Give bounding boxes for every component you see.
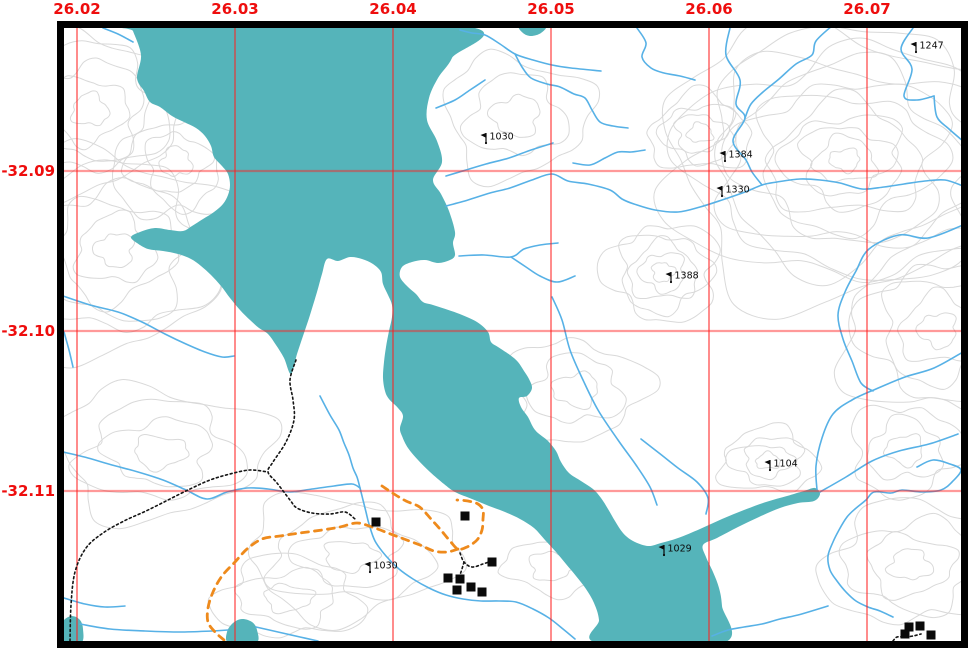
building-square-icon xyxy=(927,631,936,640)
flag-base-dot xyxy=(670,281,672,283)
spot-height-label: 1030 xyxy=(374,561,398,572)
flag-base-dot xyxy=(663,554,665,556)
spot-height-label: 1030 xyxy=(490,132,514,143)
building-square-icon xyxy=(372,518,381,527)
building-square-icon xyxy=(453,586,462,595)
map-canvas[interactable]: 12471030138413301388110410291030 26.02 2… xyxy=(0,0,976,665)
grid-label-top-5: 26.07 xyxy=(843,1,890,17)
spot-height: 1388 xyxy=(666,271,699,284)
grid-label-left-2: -32.11 xyxy=(0,483,55,499)
spot-height: 1030 xyxy=(365,561,398,574)
building-square-icon xyxy=(488,558,497,567)
building-square-icon xyxy=(461,512,470,521)
spot-height-label: 1247 xyxy=(920,41,944,52)
building-square-icon xyxy=(916,622,925,631)
grid-label-top-0: 26.02 xyxy=(53,1,100,17)
flag-base-dot xyxy=(724,160,726,162)
grid-label-left-1: -32.10 xyxy=(0,323,55,339)
grid-label-top-1: 26.03 xyxy=(211,1,258,17)
spot-height: 1030 xyxy=(481,132,514,145)
spot-height: 1330 xyxy=(717,185,750,198)
spot-height-label: 1330 xyxy=(726,185,750,196)
building-square-icon xyxy=(901,630,910,639)
flag-base-dot xyxy=(485,142,487,144)
spot-height: 1029 xyxy=(659,544,692,557)
grid-label-left-0: -32.09 xyxy=(0,163,55,179)
building-square-icon xyxy=(478,588,487,597)
flag-base-dot xyxy=(915,51,917,53)
spot-height: 1384 xyxy=(720,150,753,163)
building-square-icon xyxy=(444,574,453,583)
grid-label-top-4: 26.06 xyxy=(685,1,732,17)
grid-label-top-3: 26.05 xyxy=(527,1,574,17)
building-square-icon xyxy=(467,583,476,592)
building-square-icon xyxy=(456,575,465,584)
spot-height: 1104 xyxy=(765,459,798,472)
flag-base-dot xyxy=(721,195,723,197)
spot-height-label: 1384 xyxy=(729,150,753,161)
spot-height: 1247 xyxy=(911,41,944,54)
flag-base-dot xyxy=(769,469,771,471)
topo-map-drawing[interactable]: 12471030138413301388110410291030 xyxy=(0,0,976,665)
spot-height-label: 1388 xyxy=(675,271,699,282)
flag-base-dot xyxy=(369,571,371,573)
spot-height-label: 1104 xyxy=(774,459,798,470)
spot-height-label: 1029 xyxy=(668,544,692,555)
grid-label-top-2: 26.04 xyxy=(369,1,416,17)
